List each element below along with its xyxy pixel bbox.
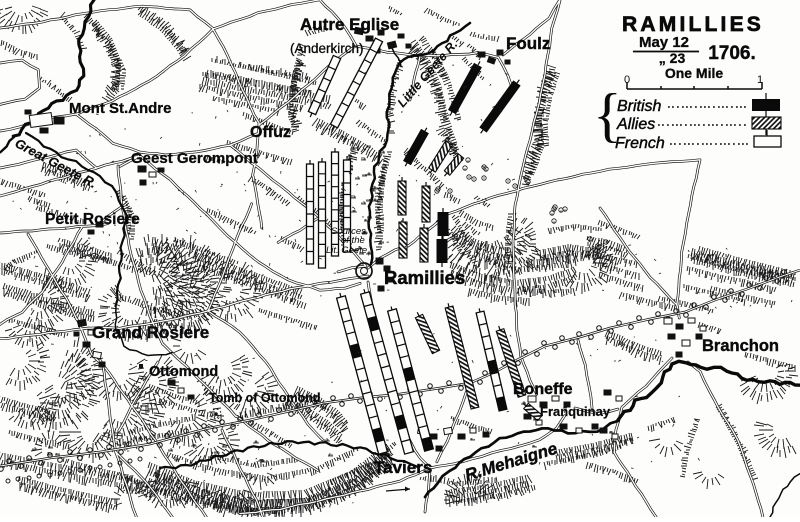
svg-text:Geest Gerompont: Geest Gerompont — [131, 150, 258, 167]
svg-text:Taviers: Taviers — [374, 458, 432, 477]
svg-text:French: French — [615, 135, 665, 152]
svg-text:1706.: 1706. — [708, 43, 756, 64]
svg-text:Franquinay: Franquinay — [540, 404, 611, 419]
svg-text:Lit. Geete: Lit. Geete — [326, 245, 367, 256]
svg-text:Boneffe: Boneffe — [513, 381, 573, 398]
svg-text:British: British — [617, 98, 662, 115]
svg-text:(Anderkirch): (Anderkirch) — [290, 41, 364, 56]
svg-text:Petit Rosiere: Petit Rosiere — [45, 211, 140, 228]
svg-text:Branchon: Branchon — [702, 337, 779, 355]
svg-text:Foulz: Foulz — [506, 34, 550, 53]
svg-text:Allies: Allies — [616, 116, 655, 133]
svg-text:Tomb of Ottomond: Tomb of Ottomond — [209, 391, 321, 405]
svg-text:Offuz: Offuz — [250, 124, 291, 141]
svg-text:Autre Eglise: Autre Eglise — [300, 15, 399, 34]
svg-text:One Mile: One Mile — [665, 65, 724, 81]
svg-text:„ 23: „ 23 — [659, 50, 686, 66]
svg-text:Ramillies: Ramillies — [384, 267, 465, 288]
svg-text:Ottomond: Ottomond — [149, 364, 218, 380]
svg-text:Grand Rosiere: Grand Rosiere — [92, 323, 209, 342]
svg-text:May 12: May 12 — [639, 34, 689, 51]
svg-text:Mont St.Andre: Mont St.Andre — [69, 100, 172, 117]
svg-text:RAMILLIES: RAMILLIES — [622, 13, 764, 36]
